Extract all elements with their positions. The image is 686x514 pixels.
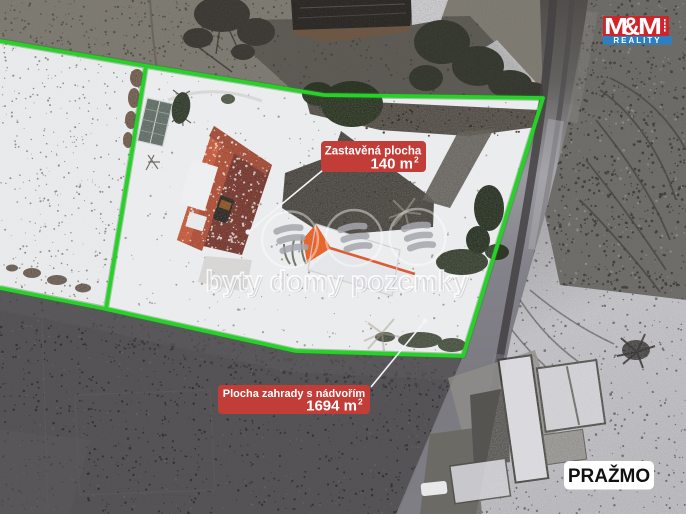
svg-text:PRAŽMO: PRAŽMO <box>568 465 650 487</box>
svg-text:1694 m: 1694 m <box>306 398 357 415</box>
svg-text:140 m: 140 m <box>370 156 413 173</box>
svg-text:REALITY: REALITY <box>613 36 661 45</box>
svg-text:2: 2 <box>414 155 419 165</box>
svg-text:2: 2 <box>358 397 363 407</box>
svg-text:byty domy pozemky: byty domy pozemky <box>206 266 469 298</box>
